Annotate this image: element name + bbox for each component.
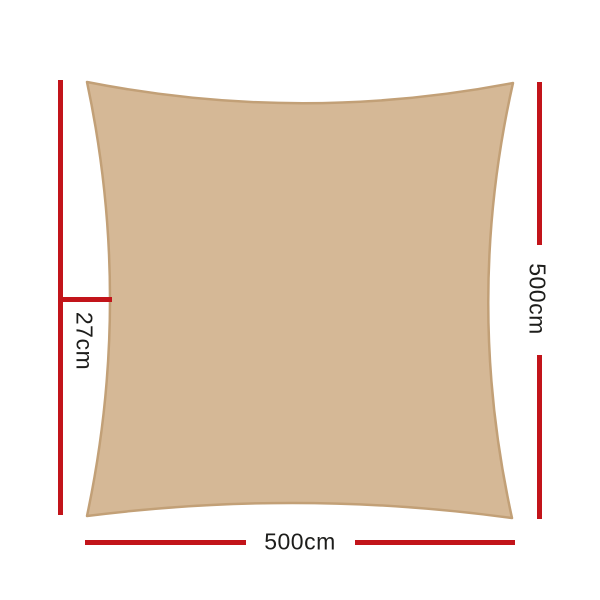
shade-sail-dimension-diagram: 27cm 500cm 500cm	[0, 0, 600, 600]
right-dimension-label: 500cm	[524, 263, 551, 335]
left-dimension-label: 27cm	[71, 312, 98, 370]
sail-shape	[87, 82, 513, 518]
diagram-canvas	[0, 0, 600, 600]
bottom-dimension-label: 500cm	[264, 529, 336, 556]
